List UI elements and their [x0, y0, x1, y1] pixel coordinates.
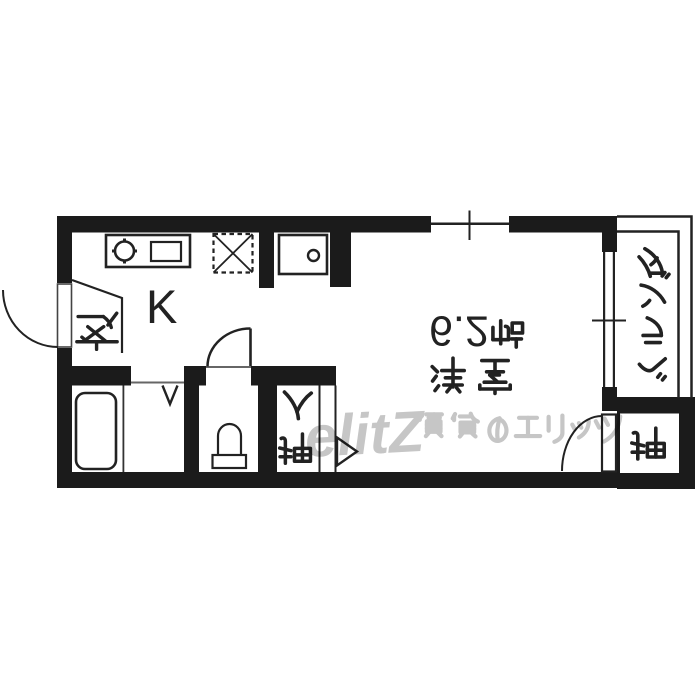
- svg-text:elitZ: elitZ: [303, 399, 428, 470]
- svg-text:K: K: [146, 280, 177, 333]
- svg-text:6.2: 6.2: [429, 307, 489, 355]
